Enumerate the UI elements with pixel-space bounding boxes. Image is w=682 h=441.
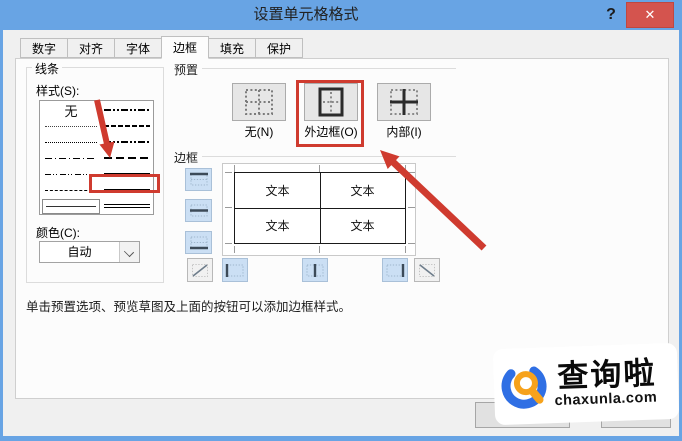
- line-style-option[interactable]: [102, 102, 152, 118]
- preview-tick: [234, 165, 235, 172]
- line-style-option-thick[interactable]: [102, 182, 152, 198]
- tab-fill[interactable]: 填充: [208, 38, 256, 58]
- preview-cell: 文本: [320, 208, 405, 243]
- preview-tick: [405, 246, 406, 253]
- top-border-icon: [189, 172, 209, 187]
- middle-vertical-border-icon: [305, 263, 325, 278]
- line-style-option[interactable]: [42, 118, 100, 134]
- line-style-option[interactable]: [42, 150, 100, 166]
- preset-inside-icon: [384, 87, 424, 117]
- tab-font[interactable]: 字体: [114, 38, 162, 58]
- line-style-option[interactable]: [102, 166, 152, 182]
- chaxunla-logo-icon: [499, 356, 553, 416]
- preset-none-button[interactable]: [232, 83, 286, 121]
- diagonal-down-border-icon: [418, 263, 436, 278]
- line-style-option[interactable]: [102, 118, 152, 134]
- dialog-title: 设置单元格格式: [0, 0, 612, 30]
- color-value: 自动: [40, 242, 119, 262]
- watermark: 查询啦 chaxunla.com: [493, 343, 680, 425]
- presets-divider: [202, 68, 456, 69]
- middle-vertical-border-button[interactable]: [302, 258, 328, 282]
- diagonal-up-border-icon: [191, 263, 209, 278]
- color-dropdown[interactable]: 自动: [39, 241, 140, 263]
- line-group-title: 线条: [32, 60, 62, 77]
- bottom-border-button[interactable]: [185, 231, 212, 254]
- preset-inside-label[interactable]: 内部(I): [369, 123, 439, 140]
- hint-text: 单击预置选项、预览草图及上面的按钮可以添加边框样式。: [26, 296, 351, 315]
- left-border-button[interactable]: [222, 258, 248, 282]
- watermark-domain: chaxunla.com: [554, 390, 657, 410]
- line-style-option[interactable]: [102, 198, 152, 214]
- left-border-icon: [225, 263, 245, 278]
- diagonal-up-border-button[interactable]: [187, 258, 213, 282]
- preset-outline-label[interactable]: 外边框(O): [296, 123, 366, 140]
- dropdown-button[interactable]: [119, 242, 139, 262]
- line-style-option-selected[interactable]: [42, 198, 100, 214]
- close-icon: ✕: [645, 7, 656, 22]
- preset-none-label[interactable]: 无(N): [224, 123, 294, 140]
- preview-tick: [225, 172, 232, 173]
- tab-strip: 数字 对齐 字体 边框 填充 保护: [21, 38, 303, 59]
- border-preview[interactable]: 文本 文本 文本 文本: [222, 163, 416, 256]
- line-style-column-left: 无: [42, 102, 100, 214]
- style-label: 样式(S):: [36, 82, 79, 99]
- line-style-listbox[interactable]: 无: [39, 100, 154, 215]
- preview-table: 文本 文本 文本 文本: [234, 172, 406, 244]
- right-border-button[interactable]: [382, 258, 408, 282]
- close-button[interactable]: ✕: [626, 2, 674, 28]
- tab-border[interactable]: 边框: [161, 36, 209, 59]
- line-style-option[interactable]: [42, 134, 100, 150]
- format-cells-dialog: 设置单元格格式 ? ✕ 数字 对齐 字体 边框 填充 保护 线条 样式(S): …: [0, 0, 682, 441]
- bottom-border-icon: [189, 235, 209, 250]
- preset-inside-button[interactable]: [377, 83, 431, 121]
- line-style-option-none[interactable]: 无: [42, 102, 100, 118]
- line-style-option[interactable]: [42, 166, 100, 182]
- preview-cell: 文本: [235, 208, 320, 243]
- watermark-text: 查询啦 chaxunla.com: [553, 357, 657, 409]
- diagonal-down-border-button[interactable]: [414, 258, 440, 282]
- line-style-option[interactable]: [102, 150, 152, 166]
- preset-outline-icon: [311, 87, 351, 117]
- line-style-column-right: [102, 102, 152, 214]
- preview-tick: [319, 165, 320, 172]
- title-bar: 设置单元格格式 ? ✕: [0, 0, 682, 30]
- chevron-down-icon: [124, 247, 134, 257]
- border-divider: [202, 156, 456, 157]
- middle-horizontal-border-icon: [189, 203, 209, 218]
- line-style-option[interactable]: [42, 182, 100, 198]
- line-group: 线条 样式(S): 无: [26, 67, 164, 283]
- preview-tick: [408, 207, 415, 208]
- preset-outline-button[interactable]: [304, 83, 358, 121]
- help-icon: ?: [606, 6, 616, 23]
- line-style-option[interactable]: [102, 134, 152, 150]
- top-border-button[interactable]: [185, 168, 212, 191]
- preview-tick: [405, 165, 406, 172]
- tab-number[interactable]: 数字: [20, 38, 68, 58]
- color-label: 颜色(C):: [36, 224, 80, 241]
- watermark-brand: 查询啦: [557, 357, 657, 393]
- preview-tick: [408, 243, 415, 244]
- preview-cell: 文本: [235, 173, 320, 208]
- preview-tick: [408, 172, 415, 173]
- tab-alignment[interactable]: 对齐: [67, 38, 115, 58]
- preview-tick: [234, 246, 235, 253]
- help-button[interactable]: ?: [602, 4, 620, 26]
- preview-tick: [225, 243, 232, 244]
- preview-tick: [225, 207, 232, 208]
- presets-title: 预置: [174, 61, 198, 78]
- selection-box: [42, 199, 100, 214]
- tab-protection[interactable]: 保护: [255, 38, 303, 58]
- right-border-icon: [385, 263, 405, 278]
- preset-none-icon: [239, 87, 279, 117]
- preview-tick: [319, 246, 320, 253]
- preview-cell: 文本: [320, 173, 405, 208]
- border-section-title: 边框: [174, 149, 198, 166]
- middle-horizontal-border-button[interactable]: [185, 199, 212, 222]
